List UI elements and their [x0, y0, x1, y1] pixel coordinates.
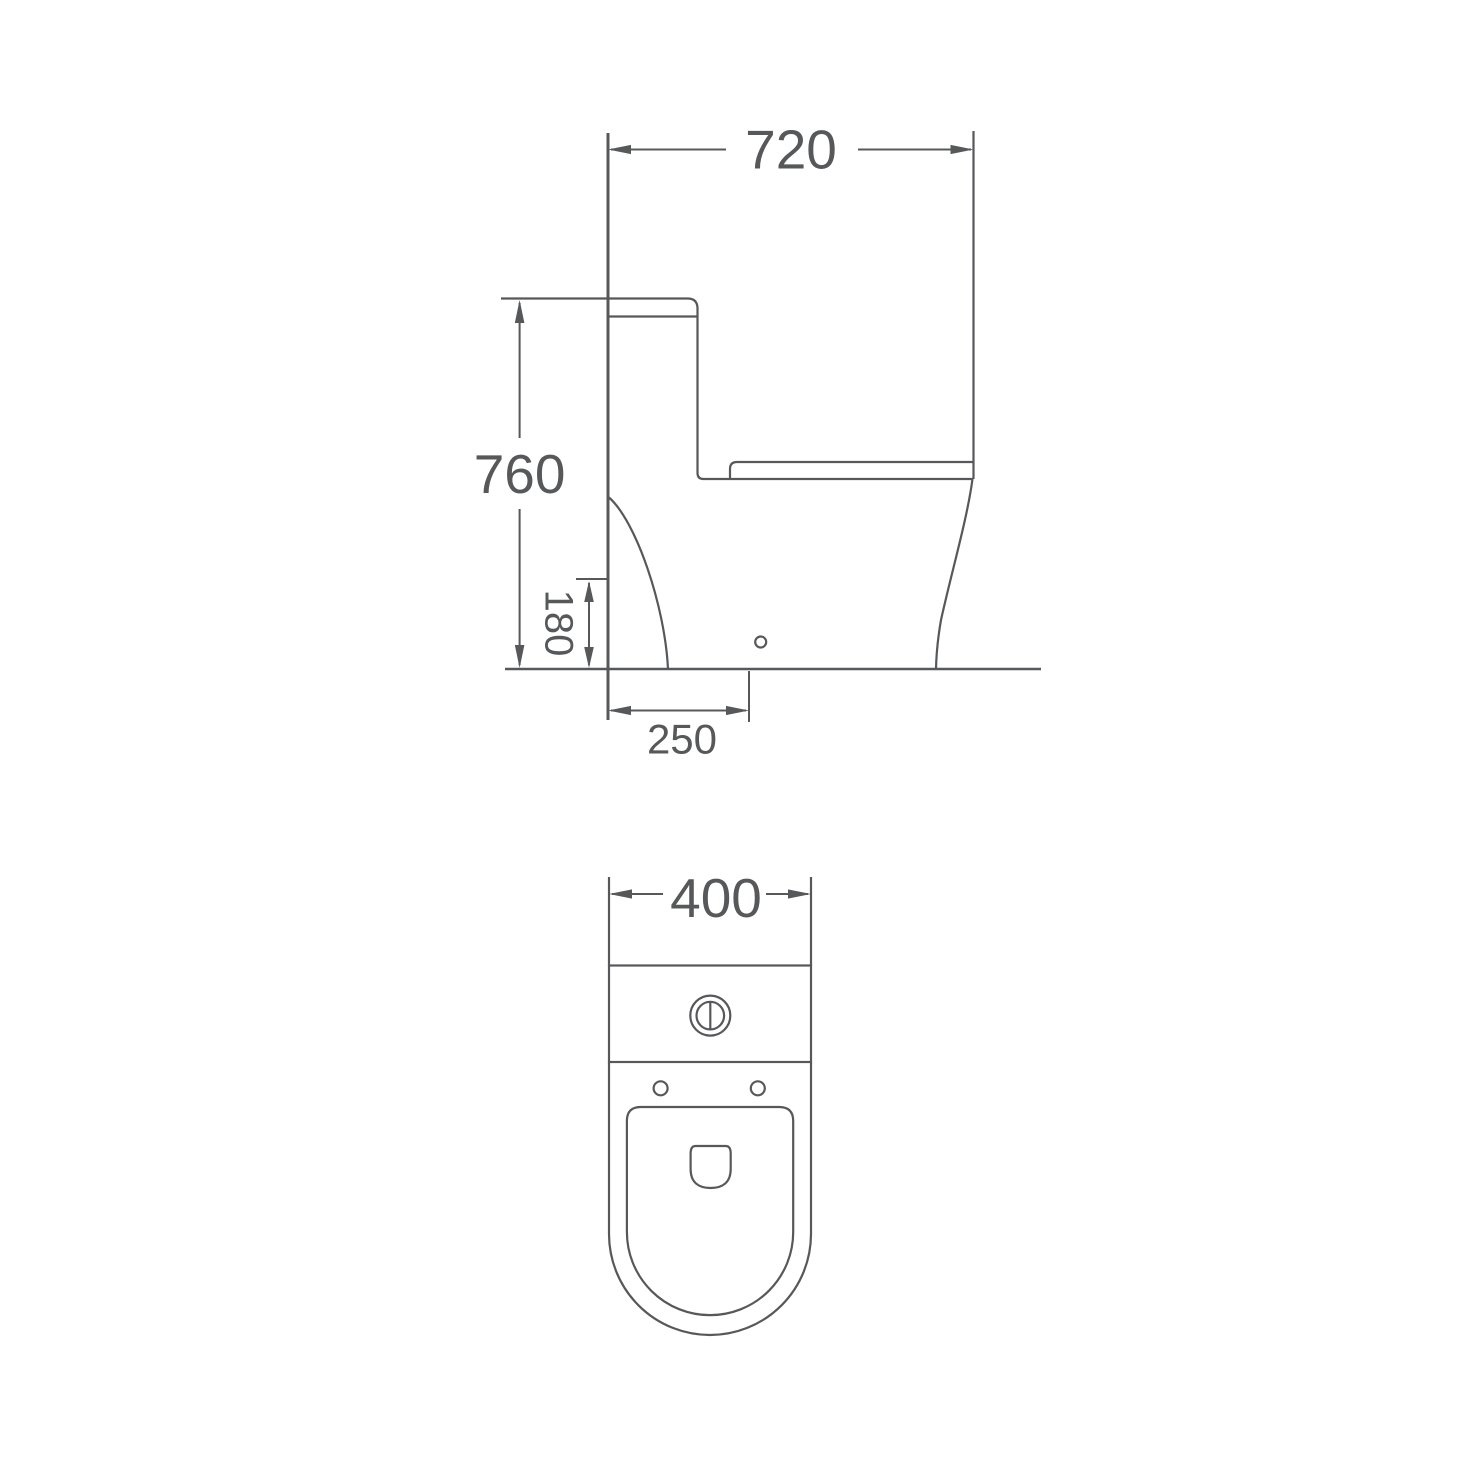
- svg-text:720: 720: [745, 119, 837, 181]
- svg-text:760: 760: [474, 443, 566, 505]
- svg-text:180: 180: [537, 590, 581, 657]
- svg-text:400: 400: [670, 867, 762, 929]
- svg-text:250: 250: [647, 716, 717, 763]
